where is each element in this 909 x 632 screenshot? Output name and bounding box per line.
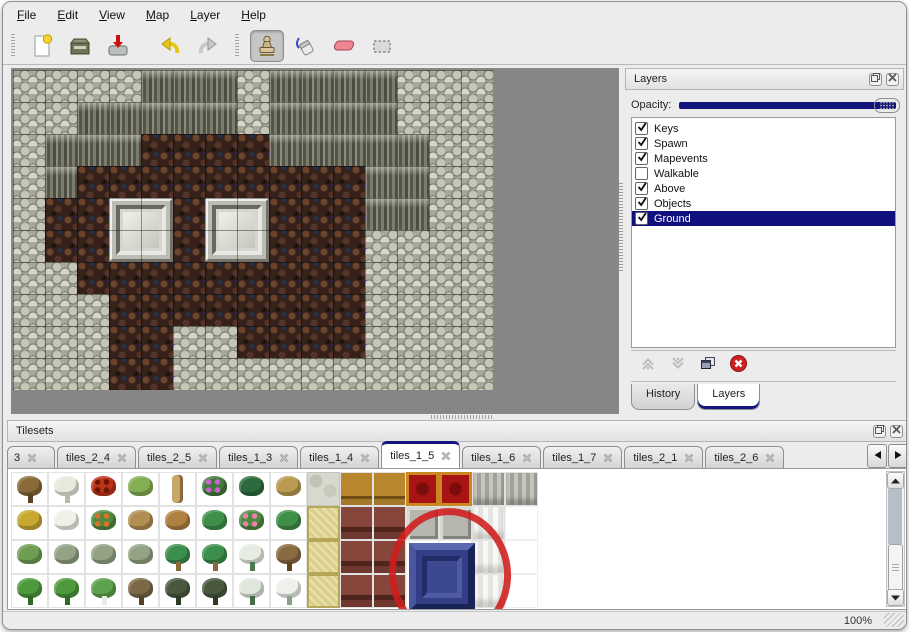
splitter-grip[interactable] (619, 183, 623, 273)
tileset-scrollbar[interactable] (886, 471, 905, 607)
tileset-tile-blank[interactable] (505, 574, 538, 608)
close-tab-icon[interactable] (360, 453, 370, 463)
map-tile-light-scale-rock (13, 102, 45, 134)
layer-row-ground[interactable]: Ground (632, 211, 895, 226)
tileset-tile-stone-blocks[interactable] (439, 506, 472, 540)
map-tile-brown-cave-floor (237, 262, 269, 294)
opacity-slider[interactable] (679, 97, 900, 113)
checkmark-icon (637, 122, 647, 135)
undo-button[interactable] (154, 31, 186, 61)
map-tile-light-scale-rock (429, 198, 461, 230)
stamp-tool-button[interactable] (250, 30, 284, 62)
float-panel-button[interactable] (869, 73, 882, 86)
zoom-level: 100% (844, 615, 872, 627)
layer-row-spawn[interactable]: Spawn (632, 136, 895, 151)
tab-label: tiles_1_7 (552, 452, 596, 464)
map-tile-brown-cave-floor (269, 262, 301, 294)
duplicate-layer-icon (699, 355, 717, 377)
map-tile-dark-cliff-wall (269, 70, 301, 102)
map-tile-dark-cliff-wall (333, 102, 365, 134)
map-tile-dark-cliff-wall (333, 134, 365, 166)
close-tab-icon[interactable] (441, 451, 451, 461)
scroll-tabs-left-button[interactable] (867, 444, 887, 468)
arrow-down-icon (890, 589, 901, 607)
map-tile-light-scale-rock (301, 358, 333, 390)
tileset-tile-carpet-red[interactable] (406, 472, 439, 506)
tileset-tile-palm-dark[interactable] (233, 472, 270, 506)
map-tile-light-scale-rock (397, 358, 429, 390)
tileset-tile-tree-snowy[interactable] (270, 574, 307, 608)
tab-label: tiles_2_1 (633, 452, 677, 464)
map-tile-light-scale-rock (45, 326, 77, 358)
select-tool-button[interactable] (366, 31, 398, 61)
map-tile-brown-cave-floor (109, 294, 141, 326)
layer-visibility-checkbox[interactable] (635, 152, 648, 165)
scroll-down-button[interactable] (887, 589, 904, 606)
map-tile-brown-cave-floor (333, 198, 365, 230)
map-tile-brown-cave-floor (301, 230, 333, 262)
arrow-up-icon (890, 472, 901, 490)
map-tile-light-scale-rock (365, 326, 397, 358)
tab-label: tiles_1_5 (390, 450, 434, 462)
tileset-tile-pine-snow[interactable] (233, 540, 270, 574)
tileset-tile-tree-bare[interactable] (11, 472, 48, 506)
map-tile-dark-cliff-wall (365, 102, 397, 134)
map-tile-brown-cave-floor (173, 230, 205, 262)
map-tile-brown-cave-floor (109, 262, 141, 294)
tileset-tabs: 3tiles_2_4tiles_2_5tiles_1_3tiles_1_4til… (7, 443, 907, 468)
checkmark-icon (637, 182, 647, 195)
tileset-tile-bush-purple[interactable] (196, 472, 233, 506)
map-tile-light-scale-rock (77, 326, 109, 358)
tab-label: tiles_2_5 (147, 452, 191, 464)
map-tile-dark-cliff-wall (141, 102, 173, 134)
tileset-tab-tiles_1_6[interactable]: tiles_1_6 (462, 446, 541, 468)
splitter-grip[interactable] (431, 415, 493, 419)
tileset-tile-tree-twisted[interactable] (122, 574, 159, 608)
map-tile-light-scale-rock (77, 358, 109, 390)
delete-layer-button[interactable] (729, 354, 748, 378)
map-tile-light-scale-rock (13, 326, 45, 358)
tileset-tile-sprouts[interactable] (11, 540, 48, 574)
layers-panel-title: Layers (634, 73, 865, 85)
save-map-button[interactable] (102, 31, 134, 61)
float-panel-button[interactable] (873, 425, 886, 438)
map-tile-light-scale-rock (13, 134, 45, 166)
map-tile-light-scale-rock (173, 358, 205, 390)
tileset-tile-table-red[interactable] (340, 540, 373, 574)
map-tile-brown-cave-floor (237, 134, 269, 166)
tileset-tile-curtain-gray[interactable] (505, 472, 538, 506)
tab-layers[interactable]: Layers (697, 384, 760, 410)
map-tile-brown-cave-floor (333, 294, 365, 326)
tileset-tile-bush-sage[interactable] (85, 540, 122, 574)
map-tile-brown-cave-floor (333, 262, 365, 294)
left-arrow-icon (873, 447, 882, 465)
map-tile-light-scale-rock (429, 134, 461, 166)
opacity-slider-track[interactable] (679, 102, 896, 109)
close-icon (891, 422, 902, 440)
map-tile-light-scale-rock (237, 70, 269, 102)
map-tile-brown-cave-floor (45, 230, 77, 262)
tilesets-panel-title: Tilesets (16, 425, 869, 437)
scroll-up-button[interactable] (887, 472, 904, 489)
map-tile-dark-cliff-wall (333, 70, 365, 102)
menu-layer[interactable]: Layer (186, 6, 224, 24)
layer-row-mapevents[interactable]: Mapevents (632, 151, 895, 166)
tileset-tile-mat-tan[interactable] (307, 574, 340, 608)
app-window: FileEditViewMapLayerHelp Layers Opacity:… (0, 0, 909, 632)
tileset-tile-bush-sage[interactable] (48, 540, 85, 574)
tileset-tile-curtain-white[interactable] (472, 574, 505, 608)
map-tile-light-scale-rock (13, 166, 45, 198)
layer-label: Above (654, 183, 685, 195)
tileset-tile-tree-cone[interactable] (11, 574, 48, 608)
map-tile-light-scale-rock (461, 230, 493, 262)
nature-tile-grid (11, 472, 307, 608)
open-map-button[interactable] (64, 31, 96, 61)
eraser-tool-button[interactable] (328, 31, 360, 61)
checkmark-icon (637, 197, 647, 210)
close-panel-button[interactable] (890, 425, 903, 438)
tileset-tile-curtain-white[interactable] (472, 506, 505, 540)
tileset-tab-tiles_1_5[interactable]: tiles_1_5 (381, 441, 460, 468)
tileset-tab-3[interactable]: 3 (7, 446, 55, 468)
scrollbar-track[interactable] (888, 489, 902, 544)
right-arrow-icon (894, 447, 903, 465)
tileset-tile-table-red[interactable] (373, 574, 406, 608)
map-tile-light-scale-rock (429, 166, 461, 198)
tab-label: tiles_1_4 (309, 452, 353, 464)
tileset-tile-stone-blocks[interactable] (406, 506, 439, 540)
map-tile-dark-cliff-wall (301, 134, 333, 166)
toolbar (3, 28, 906, 65)
map-tile-light-scale-rock (77, 70, 109, 102)
layer-row-above[interactable]: Above (632, 181, 895, 196)
redo-icon (195, 33, 221, 59)
close-panel-button[interactable] (886, 73, 899, 86)
tileset-tile-lily-pad[interactable] (196, 506, 233, 540)
map-tile-brown-cave-floor (301, 166, 333, 198)
layer-list: KeysSpawnMapeventsWalkableAboveObjectsGr… (631, 117, 896, 348)
map-view[interactable] (11, 68, 619, 414)
tab-label: tiles_2_4 (66, 452, 110, 464)
tileset-tile-wood-shelf[interactable] (373, 472, 406, 506)
map-tile-light-scale-rock (397, 326, 429, 358)
map-tile-dark-cliff-wall (173, 70, 205, 102)
tileset-tile-flowers-pink[interactable] (233, 506, 270, 540)
tileset-tab-tiles_2_1[interactable]: tiles_2_1 (624, 446, 703, 468)
map-tile-brown-cave-floor (205, 166, 237, 198)
map-tile-light-scale-rock (461, 294, 493, 326)
map-tile-light-scale-rock (13, 294, 45, 326)
door-tile (109, 198, 173, 262)
map-tile-light-scale-rock (333, 358, 365, 390)
map-tile-light-scale-rock (365, 358, 397, 390)
layer-visibility-checkbox[interactable] (635, 197, 648, 210)
toolbar-drag-handle[interactable] (233, 34, 241, 58)
map-tile-light-scale-rock (45, 70, 77, 102)
tab-label: tiles_2_6 (714, 452, 758, 464)
map-tile-dark-cliff-wall (365, 134, 397, 166)
tilesets-panel-header: Tilesets (7, 420, 907, 442)
tileset-tile-tree-cone-snow[interactable] (85, 574, 122, 608)
map-tile-light-scale-rock (45, 262, 77, 294)
menu-edit[interactable]: Edit (53, 6, 82, 24)
map-tile-light-scale-rock (429, 70, 461, 102)
opacity-label: Opacity: (631, 99, 671, 111)
redo-button[interactable] (192, 31, 224, 61)
map-tile-light-scale-rock (205, 326, 237, 358)
map-tile-brown-cave-floor (45, 198, 77, 230)
opacity-slider-handle[interactable] (874, 98, 900, 113)
door-tile (205, 198, 269, 262)
tileset-tab-tiles_1_3[interactable]: tiles_1_3 (219, 446, 298, 468)
tileset-tile-grass-dry[interactable] (122, 506, 159, 540)
checkmark-icon (637, 212, 647, 225)
tileset-tile-tree-dark[interactable] (196, 574, 233, 608)
tileset-tile-table-red[interactable] (340, 506, 373, 540)
map-tile-light-scale-rock (365, 294, 397, 326)
tileset-tab-tiles_2_5[interactable]: tiles_2_5 (138, 446, 217, 468)
close-tab-icon[interactable] (603, 453, 613, 463)
menu-file[interactable]: File (13, 6, 40, 24)
tileset-tab-tiles_2_4[interactable]: tiles_2_4 (57, 446, 136, 468)
layer-label: Mapevents (654, 153, 708, 165)
tileset-tile-flowers-orange[interactable] (85, 506, 122, 540)
tileset-tile-carpet-red[interactable] (439, 472, 472, 506)
map-tile-brown-cave-floor (141, 358, 173, 390)
tileset-tile-table-red[interactable] (340, 574, 373, 608)
map-tile-brown-cave-floor (141, 166, 173, 198)
tileset-content (7, 468, 907, 610)
map-tile-brown-cave-floor (205, 262, 237, 294)
tileset-tile-tree-cone[interactable] (48, 574, 85, 608)
stamp-icon (254, 33, 280, 59)
duplicate-layer-button[interactable] (699, 355, 717, 377)
layer-visibility-checkbox[interactable] (635, 122, 648, 135)
blue-tile-selected[interactable] (409, 543, 475, 610)
tileset-tile-plant-dry[interactable] (270, 472, 307, 506)
float-icon (874, 422, 885, 440)
tileset-tile-stone-floor[interactable] (307, 472, 340, 506)
close-tab-icon[interactable] (198, 453, 208, 463)
resize-grip[interactable] (884, 613, 904, 627)
map-tile-light-scale-rock (109, 70, 141, 102)
map-tile-light-scale-rock (397, 102, 429, 134)
map-editor-window: FileEditViewMapLayerHelp Layers Opacity:… (2, 1, 907, 630)
map-tile-dark-cliff-wall (269, 102, 301, 134)
menu-map[interactable]: Map (142, 6, 173, 24)
map-tile-brown-cave-floor (269, 326, 301, 358)
close-tab-icon[interactable] (684, 453, 694, 463)
tileset-tab-tiles_1_4[interactable]: tiles_1_4 (300, 446, 379, 468)
map-tile-light-scale-rock (173, 326, 205, 358)
map-tile-brown-cave-floor (141, 326, 173, 358)
tileset-tab-tiles_1_7[interactable]: tiles_1_7 (543, 446, 622, 468)
menu-view[interactable]: View (95, 6, 129, 24)
vertical-splitter[interactable] (617, 68, 625, 412)
tilesets-panel: Tilesets 3tiles_2_4tiles_2_5tiles_1_3til… (7, 420, 907, 612)
layer-visibility-checkbox[interactable] (635, 167, 648, 180)
tileset-tile-mat-tan[interactable] (307, 506, 340, 540)
layer-visibility-checkbox[interactable] (635, 182, 648, 195)
layer-toolstrip (631, 350, 896, 382)
layer-visibility-checkbox[interactable] (635, 137, 648, 150)
map-tile-light-scale-rock (397, 262, 429, 294)
close-tab-icon[interactable] (522, 453, 532, 463)
blue-tile-inner (422, 556, 462, 598)
tileset-tab-tiles_2_6[interactable]: tiles_2_6 (705, 446, 784, 468)
map-tile-brown-cave-floor (109, 326, 141, 358)
delete-layer-icon (729, 354, 748, 378)
map-tile-dark-cliff-wall (173, 102, 205, 134)
tab-label: 3 (14, 452, 20, 464)
door-frame (116, 205, 166, 255)
close-icon (887, 70, 898, 88)
tileset-tile-curtain-gray[interactable] (472, 472, 505, 506)
close-tab-icon[interactable] (117, 453, 127, 463)
tileset-tile-lily-pad[interactable] (270, 506, 307, 540)
map-tile-light-scale-rock (237, 102, 269, 134)
map-tile-light-scale-rock (429, 326, 461, 358)
map-tile-light-scale-rock (13, 358, 45, 390)
map-tile-light-scale-rock (429, 294, 461, 326)
door-panel (123, 212, 159, 248)
map-tile-dark-cliff-wall (45, 134, 77, 166)
map-tile-dark-cliff-wall (301, 102, 333, 134)
tileset-tile-wood-shelf[interactable] (340, 472, 373, 506)
map-tile-light-scale-rock (365, 230, 397, 262)
close-tab-icon[interactable] (765, 453, 775, 463)
tileset-tile-pine-snow-tall[interactable] (233, 574, 270, 608)
tileset-tile-blank[interactable] (505, 506, 538, 540)
map-tile-brown-cave-floor (269, 294, 301, 326)
fill-tool-button[interactable] (290, 31, 322, 61)
map-tile-dark-cliff-wall (397, 198, 429, 230)
map-tile-brown-cave-floor (301, 198, 333, 230)
tileset-tile-curtain-white[interactable] (472, 540, 505, 574)
tab-history[interactable]: History (631, 384, 695, 410)
layer-label: Objects (654, 198, 691, 210)
map-tile-light-scale-rock (461, 326, 493, 358)
tileset-tile-tree-dark[interactable] (159, 574, 196, 608)
map-tile-brown-cave-floor (301, 294, 333, 326)
close-tab-icon[interactable] (279, 453, 289, 463)
map-tile-light-scale-rock (461, 198, 493, 230)
select-icon (369, 33, 395, 59)
map-tile-dark-cliff-wall (365, 166, 397, 198)
panel-bottom-tabs: HistoryLayers (631, 384, 762, 410)
new-icon (29, 33, 55, 59)
layer-visibility-checkbox[interactable] (635, 212, 648, 225)
map-tile-brown-cave-floor (173, 198, 205, 230)
undo-icon (157, 33, 183, 59)
menu-help[interactable]: Help (237, 6, 270, 24)
tileset-tile-palm-tree[interactable] (159, 540, 196, 574)
tileset-tile-snow-mound[interactable] (48, 506, 85, 540)
map-tile-light-scale-rock (461, 166, 493, 198)
map-tile-dark-cliff-wall (301, 70, 333, 102)
tileset-tile-flower-red[interactable] (85, 472, 122, 506)
map-tile-light-scale-rock (397, 70, 429, 102)
tileset-tile-trunk-tall[interactable] (159, 472, 196, 506)
map-tile-brown-cave-floor (333, 326, 365, 358)
tileset-tile-tree-white[interactable] (48, 472, 85, 506)
tileset-tile-hay-mound[interactable] (11, 506, 48, 540)
layer-label: Spawn (654, 138, 688, 150)
move-layer-down-icon (669, 355, 687, 377)
tileset-tile-palm-trunk[interactable] (270, 540, 307, 574)
tileset-tile-stump[interactable] (122, 472, 159, 506)
map-tile-brown-cave-floor (269, 198, 301, 230)
layer-row-walkable[interactable]: Walkable (632, 166, 895, 181)
map-tile-brown-cave-floor (269, 230, 301, 262)
map-tile-brown-cave-floor (109, 166, 141, 198)
map-tile-brown-cave-floor (237, 326, 269, 358)
checkmark-icon (637, 137, 647, 150)
map-tile-light-scale-rock (237, 358, 269, 390)
door-frame (212, 205, 262, 255)
layer-label: Keys (654, 123, 678, 135)
tileset-tile-bush-sage[interactable] (122, 540, 159, 574)
tileset-tile-mat-tan[interactable] (307, 540, 340, 574)
map-tile-brown-cave-floor (237, 294, 269, 326)
map-tile-dark-cliff-wall (141, 70, 173, 102)
move-layer-up-icon (639, 355, 657, 377)
map-tile-dark-cliff-wall (77, 102, 109, 134)
horizontal-splitter[interactable] (3, 412, 907, 420)
map-canvas[interactable] (13, 70, 493, 390)
map-tile-light-scale-rock (77, 294, 109, 326)
map-tile-brown-cave-floor (333, 166, 365, 198)
layer-label: Walkable (654, 168, 699, 180)
tileset-tile-blank[interactable] (505, 540, 538, 574)
map-tile-brown-cave-floor (141, 262, 173, 294)
map-tile-light-scale-rock (461, 358, 493, 390)
tileset-tile-table-red[interactable] (373, 540, 406, 574)
tileset-tile-table-red[interactable] (373, 506, 406, 540)
close-tab-icon[interactable] (27, 453, 37, 463)
layer-label: Ground (654, 213, 691, 225)
map-tile-light-scale-rock (461, 102, 493, 134)
map-tile-dark-cliff-wall (45, 166, 77, 198)
opacity-row: Opacity: (625, 95, 902, 115)
new-map-button[interactable] (26, 31, 58, 61)
tileset-tile-palm-tree[interactable] (196, 540, 233, 574)
map-tile-brown-cave-floor (205, 294, 237, 326)
map-tile-dark-cliff-wall (269, 134, 301, 166)
map-tile-dark-cliff-wall (109, 134, 141, 166)
map-tile-brown-cave-floor (77, 262, 109, 294)
layer-row-keys[interactable]: Keys (632, 121, 895, 136)
map-tile-brown-cave-floor (301, 326, 333, 358)
layer-row-objects[interactable]: Objects (632, 196, 895, 211)
map-tile-light-scale-rock (45, 358, 77, 390)
toolbar-drag-handle[interactable] (9, 34, 17, 58)
tileset-tile-leaves[interactable] (159, 506, 196, 540)
map-tile-light-scale-rock (429, 358, 461, 390)
map-tile-dark-cliff-wall (205, 70, 237, 102)
map-tile-brown-cave-floor (77, 230, 109, 262)
save-icon (105, 33, 131, 59)
move-layer-up-button[interactable] (639, 355, 657, 377)
scroll-tabs-right-button[interactable] (888, 444, 907, 468)
scrollbar-thumb[interactable] (888, 544, 903, 592)
move-layer-down-button[interactable] (669, 355, 687, 377)
float-icon (870, 70, 881, 88)
map-tile-light-scale-rock (397, 230, 429, 262)
